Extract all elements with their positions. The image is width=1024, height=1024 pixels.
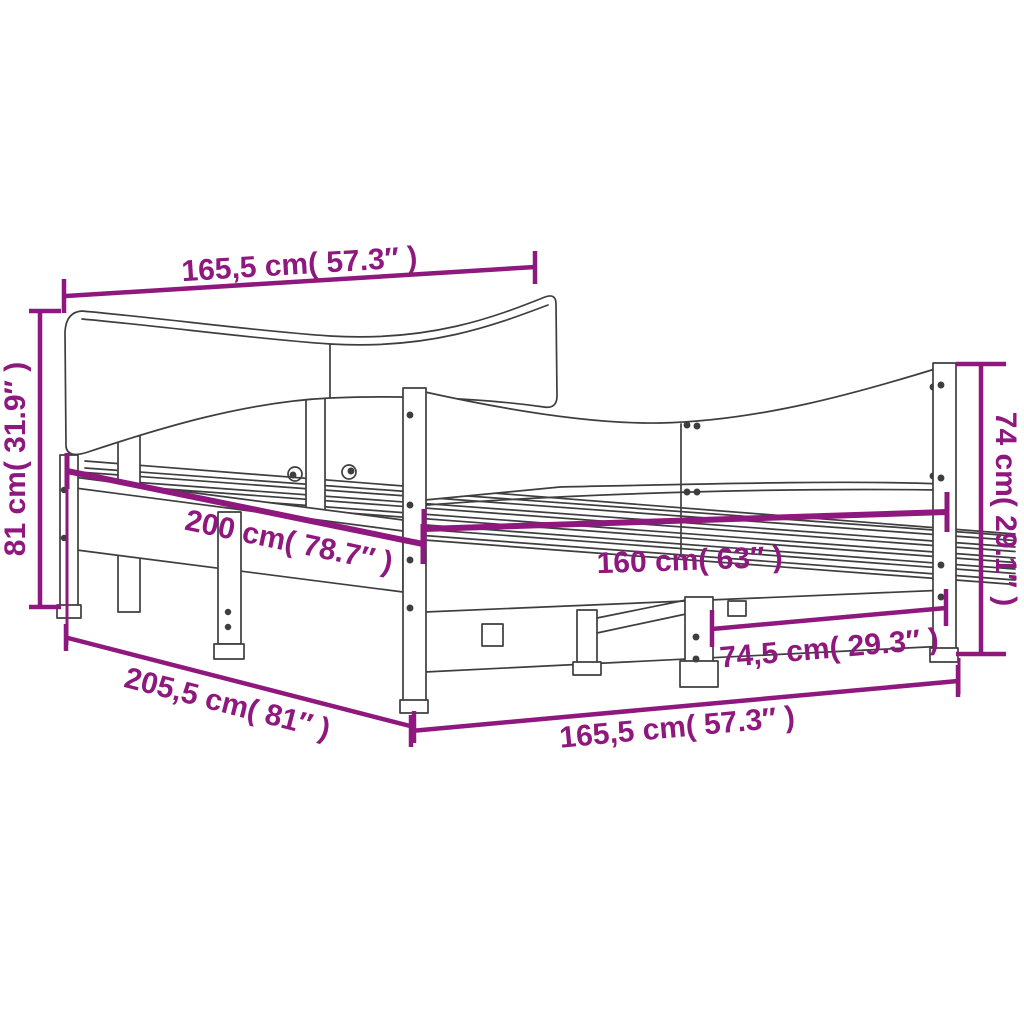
footboard-center-foot [680, 661, 718, 687]
center-leg-foot [573, 662, 601, 675]
rail-bracket [728, 601, 746, 616]
label-overall-length: 205,5 cm( 81″ ) [121, 661, 334, 746]
dim-headboard-height-left [29, 311, 61, 607]
label-headboard-height-left: 81 cm( 31.9″ ) [0, 362, 32, 556]
center-bracket [482, 624, 503, 646]
dimension-diagram: 165,5 cm( 57.3″ ) 81 cm( 31.9″ ) 200 cm(… [0, 0, 1024, 1024]
bed-frame-diagram-svg: 165,5 cm( 57.3″ ) 81 cm( 31.9″ ) 200 cm(… [0, 0, 1024, 1024]
label-mattress-width: 160 cm( 63″ ) [596, 541, 783, 580]
label-footboard-height-right: 74 cm( 29.1″ ) [989, 412, 1022, 606]
support-leg-foot [214, 644, 244, 659]
center-leg [577, 610, 597, 664]
